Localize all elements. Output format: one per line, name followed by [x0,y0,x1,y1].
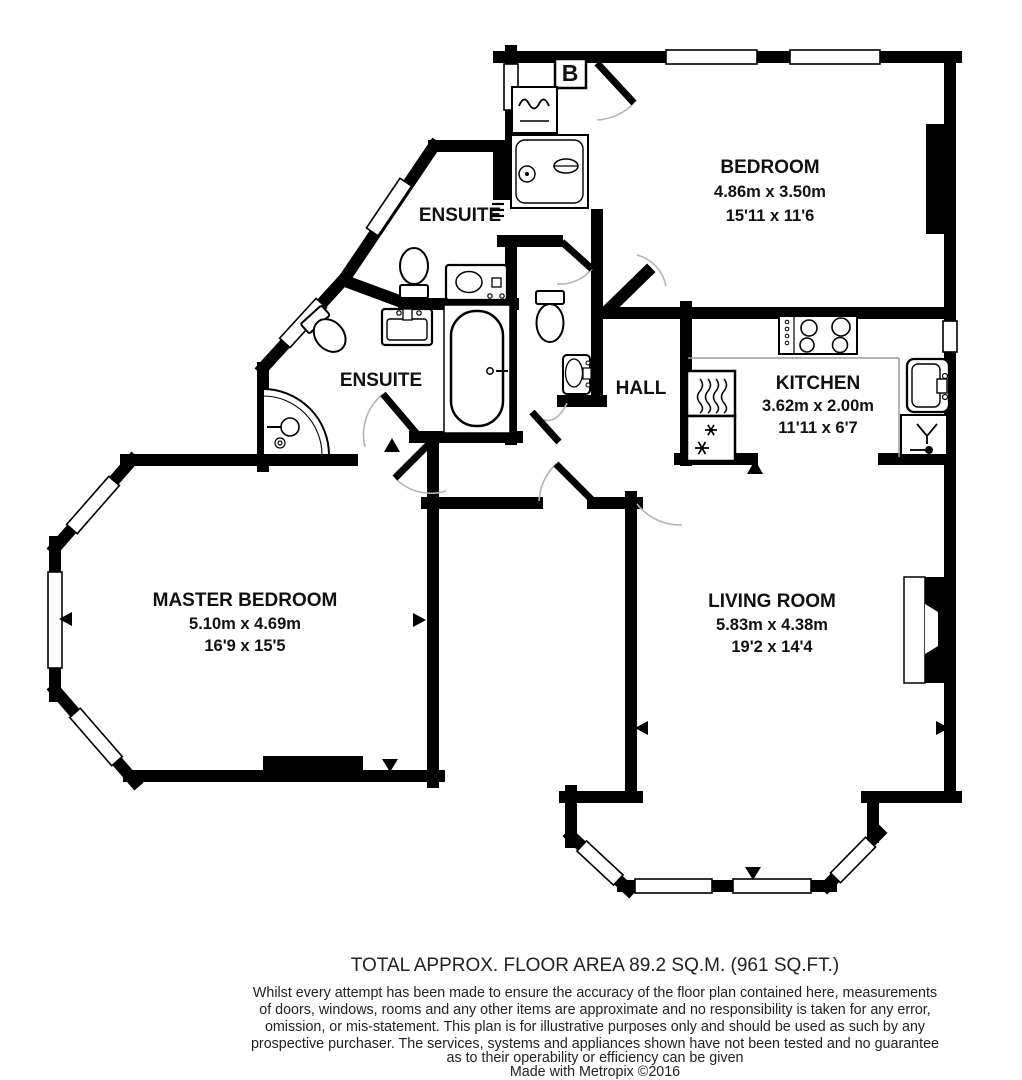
metropix-credit: Made with Metropix ©2016 [510,1064,680,1080]
window [70,708,123,765]
room-label-ensuite-top: ENSUITE [419,205,501,226]
freezer-icon [687,416,735,461]
window [790,50,880,64]
arrow-up-icon [384,438,400,452]
room-dim-imperial: 16'9 x 15'5 [204,637,285,655]
kitchen-sink-icon [907,359,949,412]
sink-icon [563,355,591,394]
window [67,476,120,533]
boiler-label: B [562,60,579,86]
sink-icon [382,309,432,345]
door-leaf [556,464,594,502]
room-label-master-bedroom: MASTER BEDROOM [153,590,338,611]
glasswasher-icon [901,415,947,455]
door-leaf [562,242,592,269]
door-arc [637,504,682,525]
arrow-down-icon [745,867,761,880]
door-arc [557,269,592,284]
boiler-box: B [555,59,586,88]
disclaimer-line: of doors, windows, rooms and any other i… [259,1002,931,1018]
window [635,879,712,893]
toilet-icon [536,291,564,342]
wall [609,272,647,309]
room-label-kitchen: KITCHEN [776,373,860,394]
door-arc [597,103,634,120]
toilet-icon [400,248,428,298]
basin-icon [512,87,557,133]
room-label-bedroom: BEDROOM [720,157,819,178]
door-leaf [532,412,559,442]
window [366,178,411,236]
corner-shower-icon [263,389,329,455]
total-floor-area: TOTAL APPROX. FLOOR AREA 89.2 SQ.M. (961… [351,955,840,976]
door-leaf [395,443,430,478]
room-dim-metric: 4.86m x 3.50m [714,183,826,201]
room-dim-metric: 5.83m x 4.38m [716,616,828,634]
window [943,321,957,352]
window [577,841,623,885]
room-label-hall: HALL [616,378,667,399]
floor-plan-page: B [0,0,1022,1080]
window [48,572,62,668]
sink-icon [446,265,507,300]
disclaimer-line: Whilst every attempt has been made to en… [253,985,937,1001]
fireplace-icon [904,577,947,683]
room-label-living-room: LIVING ROOM [708,591,836,612]
room-dim-metric: 5.10m x 4.69m [189,615,301,633]
floor-plan: B [0,0,1022,1080]
door-leaf [383,394,417,434]
window [830,837,875,882]
room-dim-imperial: 19'2 x 14'4 [731,638,813,656]
room-dim-metric: 3.62m x 2.00m [762,397,874,415]
hob-icon [779,316,857,354]
door-arc [539,464,556,501]
walls [55,51,956,890]
door-leaf [597,63,634,103]
footer: TOTAL APPROX. FLOOR AREA 89.2 SQ.M. (961… [251,955,939,1080]
shower-cubicle-icon [511,135,588,208]
room-dim-imperial: 15'11 x 11'6 [726,207,815,225]
chimney-breast [926,124,950,234]
room-label-ensuite-lower: ENSUITE [340,370,422,391]
door-arc [363,394,383,447]
bathtub-icon [444,305,510,433]
washing-machine-icon [687,371,735,416]
disclaimer-line: omission, or mis-statement. This plan is… [265,1019,926,1035]
window [733,879,811,893]
arrow-right-icon [413,613,426,627]
room-dim-imperial: 11'11 x 6'7 [778,419,857,437]
chimney-breast [263,756,363,772]
window [666,50,757,64]
